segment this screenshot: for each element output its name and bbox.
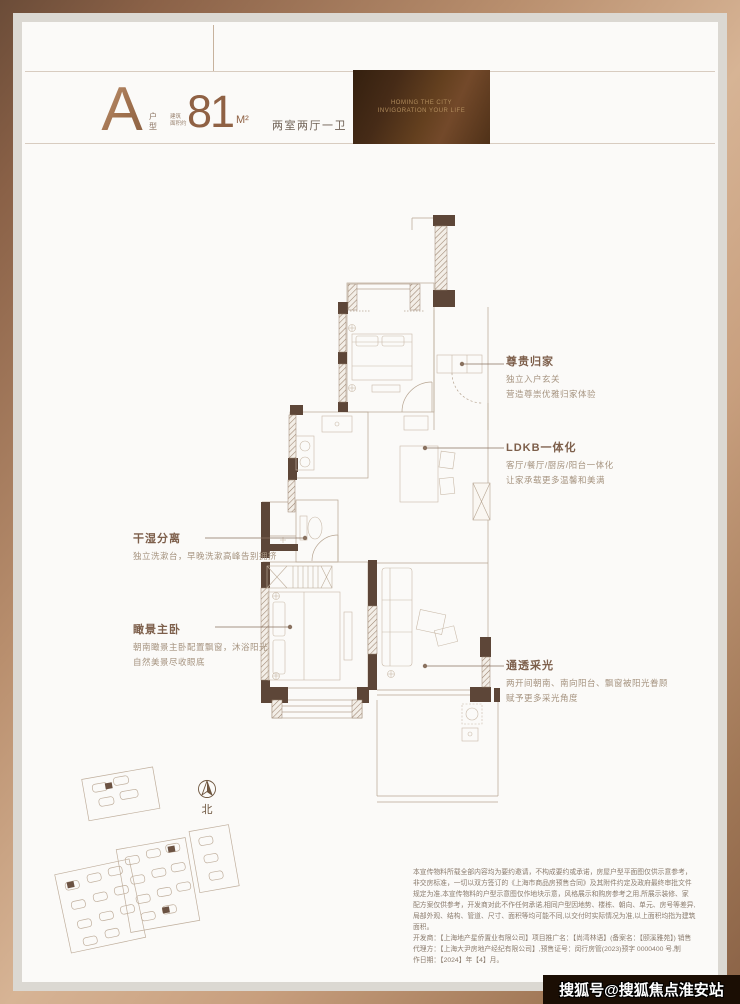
wardrobe — [267, 566, 332, 588]
annotation-entry-title: 尊贵归家 — [506, 353, 596, 369]
disclaimer-line: 面积。 — [413, 922, 713, 933]
disclaimer-line: 非交房标准，一切以双方签订的《上海市商品房预售合同》及其附件约定及政府最终审批文… — [413, 878, 713, 889]
annotation-wet-dry-line1: 独立洗漱台，早晚洗漱高峰告别拥挤 — [133, 549, 277, 564]
site-building-1 — [82, 767, 160, 821]
annotation-daylight-title: 通透采光 — [506, 657, 668, 673]
floor-plan-drawing — [0, 0, 740, 1004]
site-building-2 — [55, 859, 146, 953]
annotation-daylight-line1: 两开间朝南、南向阳台、飘窗被阳光眷顾 — [506, 676, 668, 691]
annotation-master-bedroom-title: 瞰景主卧 — [133, 621, 268, 637]
disclaimer-line: 局部外观、结构、管道、尺寸、面积等均可能不同,以交付时实际情况为准,以上面积均指… — [413, 911, 713, 922]
annotation-entry: 尊贵归家 独立入户玄关 营造尊崇优雅归家体验 — [506, 353, 596, 401]
annotation-ldkb-title: LDKB一体化 — [506, 439, 614, 455]
flyer-page: A 户型 建筑 面积约 81 M² 两室两厅一卫 HOMING THE CITY… — [0, 0, 740, 1004]
annotation-ldkb: LDKB一体化 客厅/餐厅/厨房/阳台一体化 让家承载更多温馨和美满 — [506, 439, 614, 487]
room-outlines — [262, 218, 498, 802]
site-building-3 — [116, 838, 200, 933]
annotation-ldkb-line1: 客厅/餐厅/厨房/阳台一体化 — [506, 458, 614, 473]
annotation-entry-line2: 营造尊崇优雅归家体验 — [506, 387, 596, 402]
bay-window-block — [473, 483, 490, 520]
annotation-wet-dry: 干湿分离 独立洗漱台，早晚洗漱高峰告别拥挤 — [133, 530, 277, 564]
disclaimer-line: 配方案仅供参考，开发商对此不作任何承诺,相同户型因地势、楼栋、朝向、单元、房号等… — [413, 900, 713, 911]
annotation-daylight: 通透采光 两开间朝南、南向阳台、飘窗被阳光眷顾 赋予更多采光角度 — [506, 657, 668, 705]
disclaimer-line: 开发商：【上海地产星侨置业有限公司】项目推广名：【尚湾林语】(备案名：【颐溪雅苑… — [413, 933, 713, 944]
annotation-wet-dry-title: 干湿分离 — [133, 530, 277, 546]
watermark-badge: 搜狐号@搜狐焦点淮安站 — [543, 975, 740, 1004]
disclaimer-line: 代理方：【上海大尹房地产经纪有限公司】,预售证号：闵行房管(2023)预字 00… — [413, 944, 713, 955]
disclaimer-line: 本宣传物料所载全部内容均为要约邀请，不构成要约或承诺，房屋户型平面图仅供示意参考… — [413, 867, 713, 878]
site-building-4 — [189, 825, 239, 893]
disclaimer-line: 规定为准,本宣传物料的户型示意图仅作地块示意，风格展示和购房参考之用,所展示装修… — [413, 889, 713, 900]
disclaimer-text: 本宣传物料所载全部内容均为要约邀请，不构成要约或承诺，房屋户型平面图仅供示意参考… — [413, 867, 713, 966]
walls — [261, 215, 500, 703]
disclaimer-line: 作日期：【2024】年【4】月。 — [413, 955, 713, 966]
annotation-master-bedroom-line2: 自然美景尽收眼底 — [133, 655, 268, 670]
annotation-master-bedroom-line1: 朝南瞰景主卧配置飘窗，沐浴阳光 — [133, 640, 268, 655]
annotation-ldkb-line2: 让家承载更多温馨和美满 — [506, 473, 614, 488]
annotation-entry-line1: 独立入户玄关 — [506, 372, 596, 387]
annotation-master-bedroom: 瞰景主卧 朝南瞰景主卧配置飘窗，沐浴阳光 自然美景尽收眼底 — [133, 621, 268, 669]
door-arcs — [312, 373, 482, 561]
annotation-daylight-line2: 赋予更多采光角度 — [506, 691, 668, 706]
north-label: 北 — [196, 801, 218, 817]
watermark-text: 搜狐号@搜狐焦点淮安站 — [559, 979, 724, 1000]
north-arrow — [199, 781, 216, 798]
